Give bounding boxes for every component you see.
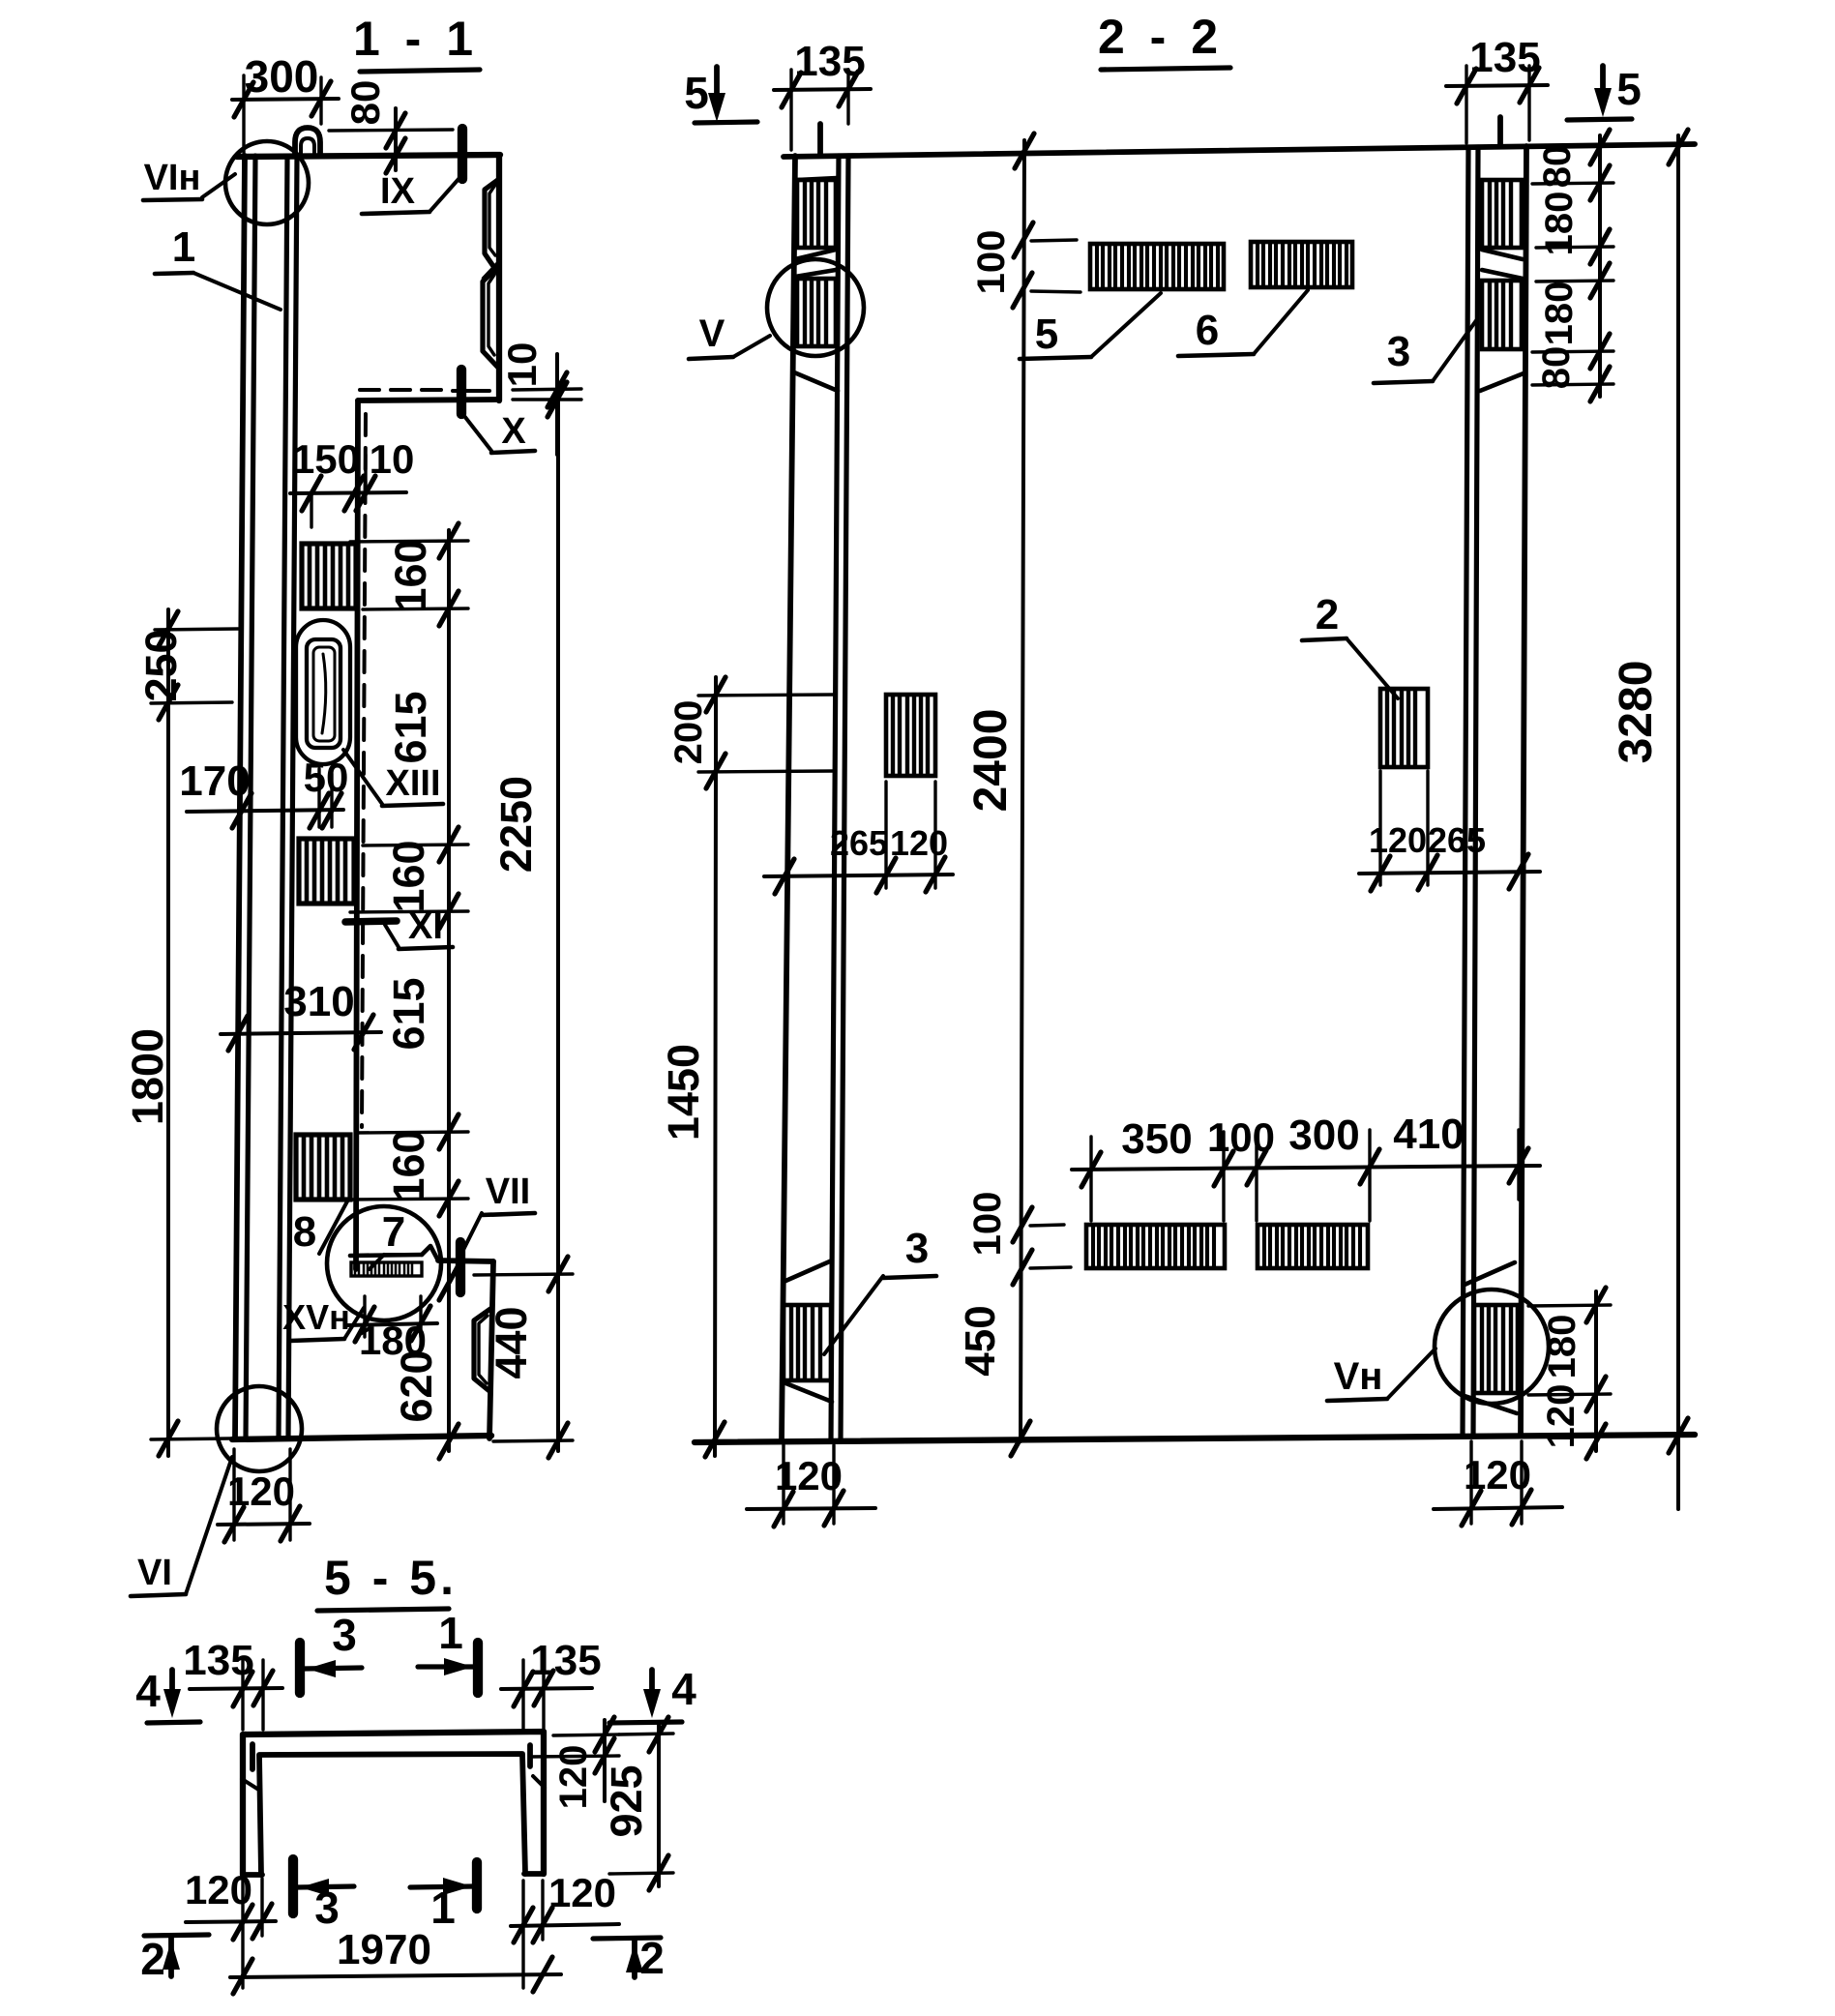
svg-text:2: 2	[1316, 591, 1339, 638]
svg-text:100: 100	[970, 230, 1013, 295]
svg-text:160: 160	[384, 1129, 433, 1201]
svg-text:160: 160	[386, 539, 435, 611]
svg-text:7: 7	[382, 1208, 405, 1256]
svg-text:5: 5	[1616, 64, 1642, 114]
svg-text:5: 5	[1035, 311, 1058, 358]
svg-text:120: 120	[548, 1870, 616, 1915]
svg-text:VI: VI	[137, 1553, 172, 1593]
svg-text:120: 120	[890, 823, 948, 863]
svg-text:1800: 1800	[123, 1028, 172, 1125]
svg-text:265: 265	[1428, 820, 1486, 860]
svg-text:135: 135	[794, 38, 865, 85]
svg-text:300: 300	[1288, 1112, 1359, 1159]
svg-text:350: 350	[1121, 1115, 1192, 1163]
svg-text:10: 10	[499, 342, 545, 388]
svg-text:10: 10	[370, 436, 415, 482]
svg-text:440: 440	[487, 1306, 536, 1379]
svg-text:2250: 2250	[491, 776, 541, 873]
svg-text:120: 120	[552, 1745, 595, 1810]
svg-text:265: 265	[830, 823, 888, 863]
svg-text:615: 615	[386, 691, 435, 763]
svg-text:3280: 3280	[1611, 661, 1662, 764]
svg-text:100: 100	[1207, 1114, 1275, 1160]
svg-text:IX: IX	[380, 171, 416, 212]
svg-text:310: 310	[283, 978, 354, 1025]
svg-text:VII: VII	[486, 1171, 530, 1212]
svg-text:1: 1	[430, 1883, 456, 1933]
svg-text:1: 1	[172, 223, 195, 271]
svg-text:2400: 2400	[965, 709, 1017, 813]
svg-text:5: 5	[684, 68, 709, 118]
svg-text:250: 250	[136, 629, 186, 701]
svg-text:XVн: XVн	[282, 1297, 350, 1337]
svg-text:620: 620	[392, 1349, 441, 1422]
svg-text:170: 170	[179, 757, 250, 805]
svg-text:2 - 2: 2 - 2	[1098, 10, 1224, 64]
svg-text:3: 3	[1387, 328, 1410, 375]
svg-text:1450: 1450	[659, 1044, 708, 1141]
svg-text:8: 8	[293, 1208, 316, 1256]
svg-text:160: 160	[384, 840, 433, 912]
svg-text:X: X	[501, 411, 526, 452]
svg-text:XIII: XIII	[385, 763, 440, 804]
svg-text:410: 410	[1393, 1111, 1464, 1158]
svg-text:80: 80	[1536, 145, 1579, 189]
svg-text:180: 180	[1538, 282, 1581, 346]
svg-text:120: 120	[1369, 820, 1427, 860]
svg-text:V: V	[699, 312, 725, 355]
svg-text:50: 50	[304, 755, 349, 800]
svg-text:150: 150	[292, 436, 360, 482]
svg-text:1: 1	[438, 1608, 463, 1658]
svg-text:180: 180	[1541, 1315, 1583, 1379]
svg-text:925: 925	[602, 1764, 651, 1837]
svg-text:1970: 1970	[337, 1926, 431, 1973]
svg-text:4: 4	[671, 1664, 696, 1714]
svg-text:100: 100	[966, 1192, 1009, 1257]
svg-text:3: 3	[905, 1225, 929, 1272]
svg-text:1 - 1: 1 - 1	[353, 12, 479, 66]
svg-text:120: 120	[227, 1468, 295, 1514]
svg-text:300: 300	[245, 51, 319, 102]
svg-text:4: 4	[135, 1666, 161, 1716]
svg-text:2: 2	[140, 1934, 165, 1984]
svg-text:200: 200	[667, 700, 710, 765]
svg-text:450: 450	[957, 1305, 1004, 1376]
svg-text:615: 615	[384, 977, 433, 1050]
svg-text:5 - 5.: 5 - 5.	[324, 1551, 458, 1605]
svg-text:VIн: VIн	[144, 158, 201, 198]
svg-text:80: 80	[342, 80, 388, 126]
svg-text:135: 135	[530, 1637, 601, 1684]
svg-text:6: 6	[1196, 307, 1219, 354]
svg-text:Vн: Vн	[1334, 1355, 1383, 1398]
svg-text:2: 2	[639, 1933, 665, 1983]
svg-text:3: 3	[332, 1610, 357, 1660]
svg-text:3: 3	[314, 1883, 340, 1933]
